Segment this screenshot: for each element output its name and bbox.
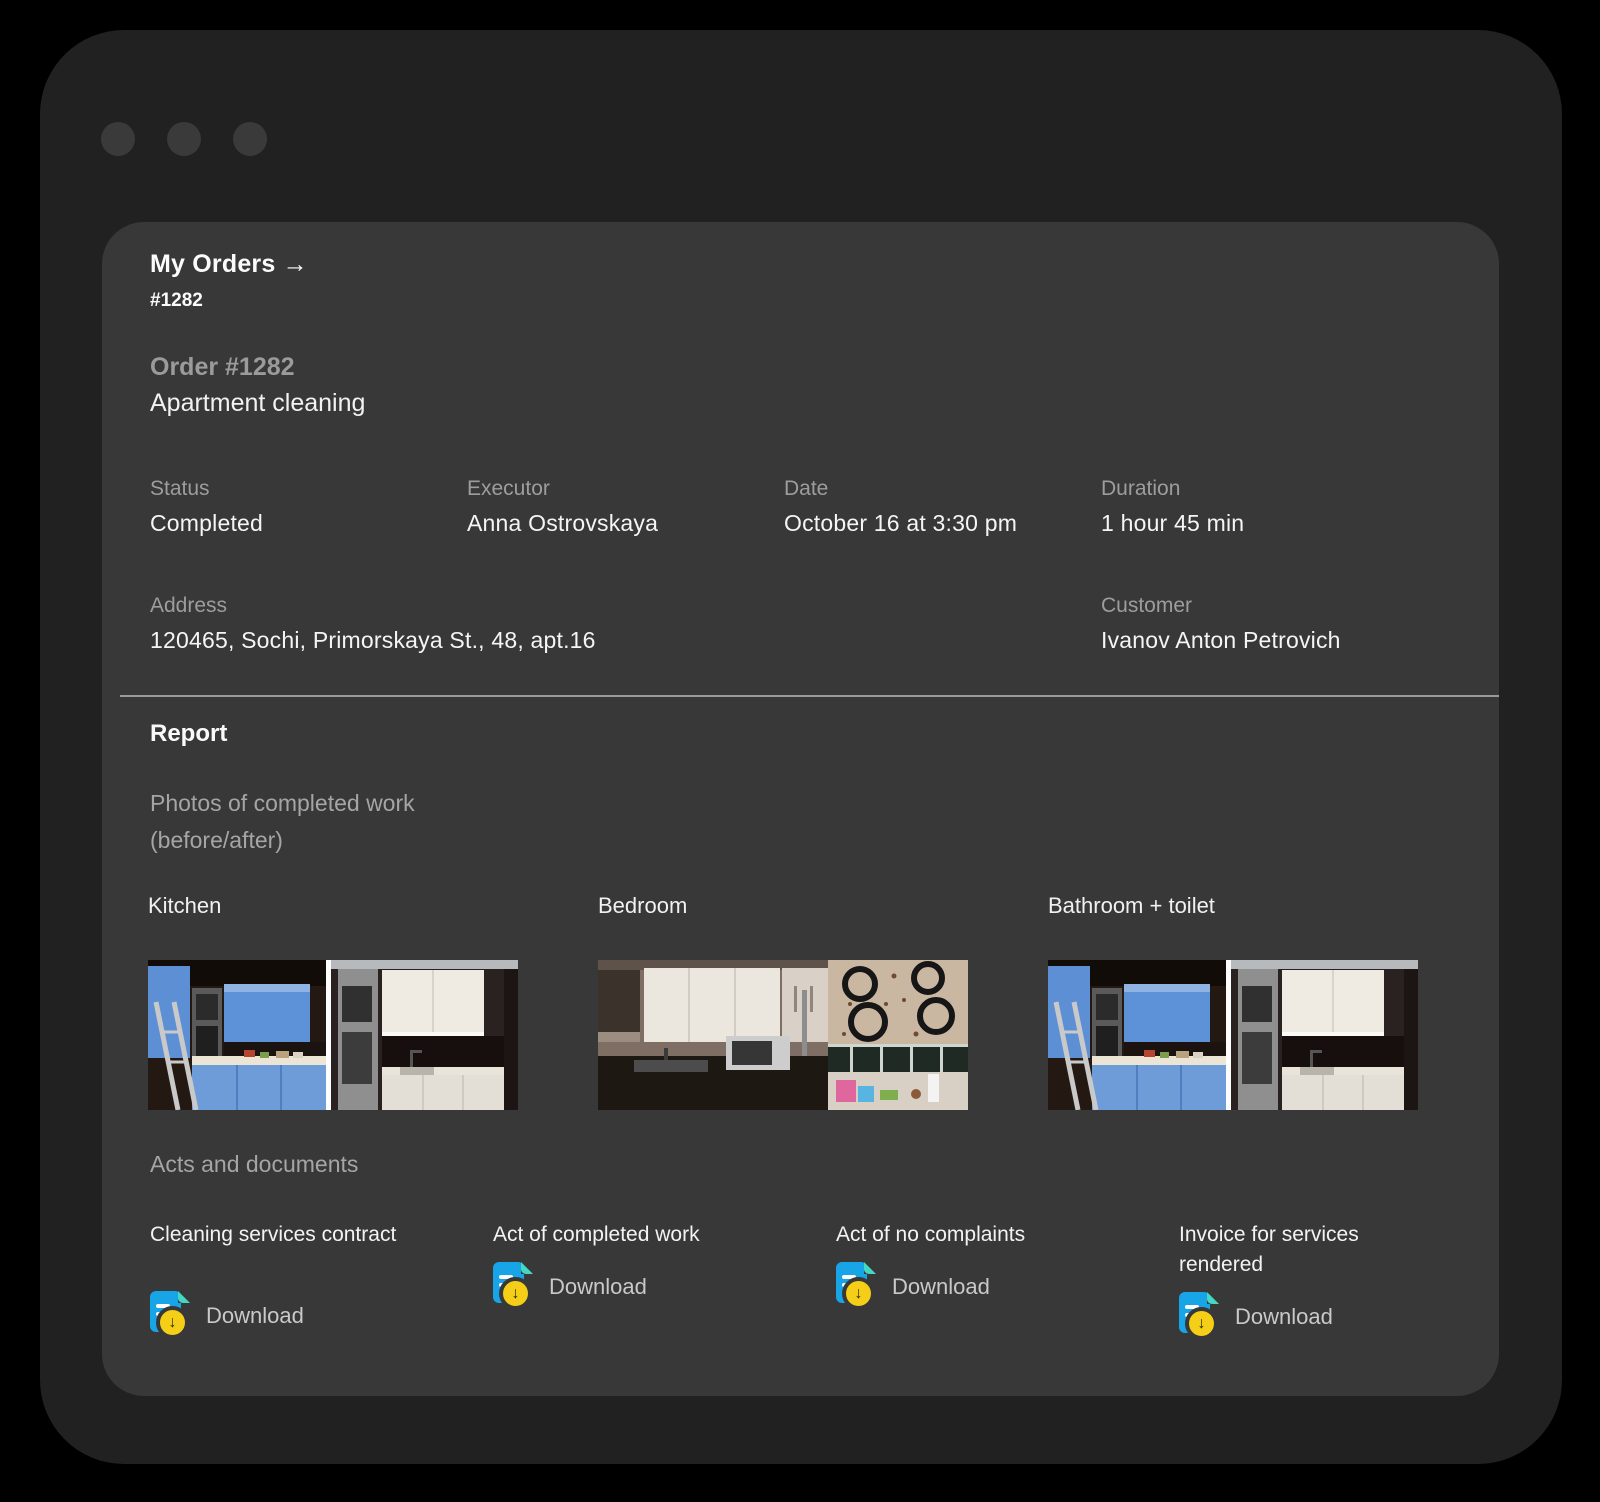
download-arrow-icon: ↓ bbox=[842, 1277, 875, 1310]
window-dot-icon[interactable] bbox=[167, 122, 201, 156]
room-label-kitchen: Kitchen bbox=[148, 893, 518, 919]
room-column-bedroom: Bedroom bbox=[598, 893, 968, 1110]
room-label-bathroom: Bathroom + toilet bbox=[1048, 893, 1418, 919]
breadcrumb-order-id: #1282 bbox=[150, 290, 203, 312]
download-label: Download bbox=[549, 1274, 647, 1300]
section-divider bbox=[120, 695, 1499, 697]
duration-label: Duration bbox=[1101, 476, 1244, 502]
room-label-bedroom: Bedroom bbox=[598, 893, 968, 919]
window-dot-icon[interactable] bbox=[233, 122, 267, 156]
photos-caption: Photos of completed work (before/after) bbox=[150, 785, 415, 859]
download-arrow-icon: ↓ bbox=[1185, 1307, 1218, 1340]
info-field-date: Date October 16 at 3:30 pm bbox=[784, 476, 1101, 538]
info-field-duration: Duration 1 hour 45 min bbox=[1101, 476, 1244, 538]
breadcrumb-my-orders[interactable]: My Orders → bbox=[150, 250, 308, 279]
executor-label: Executor bbox=[467, 476, 784, 502]
doc-item-act-no-complaints: Act of no complaints ↓ Download bbox=[836, 1220, 1179, 1342]
info-field-executor: Executor Anna Ostrovskaya bbox=[467, 476, 784, 538]
doc-item-invoice: Invoice for services rendered ↓ Download bbox=[1179, 1220, 1384, 1342]
download-label: Download bbox=[206, 1303, 304, 1329]
info-field-status: Status Completed bbox=[150, 476, 467, 538]
order-info-row: Address 120465, Sochi, Primorskaya St., … bbox=[150, 593, 1341, 655]
document-download-icon: ↓ bbox=[1179, 1292, 1219, 1342]
address-value: 120465, Sochi, Primorskaya St., 48, apt.… bbox=[150, 625, 1101, 655]
download-button[interactable]: ↓ Download bbox=[150, 1291, 304, 1341]
download-label: Download bbox=[1235, 1304, 1333, 1330]
window-dot-icon[interactable] bbox=[101, 122, 135, 156]
date-label: Date bbox=[784, 476, 1101, 502]
info-field-address: Address 120465, Sochi, Primorskaya St., … bbox=[150, 593, 1101, 655]
documents-row: Cleaning services contract ↓ Download Ac… bbox=[150, 1220, 1384, 1342]
bedroom-before-after-photo[interactable] bbox=[598, 960, 968, 1110]
duration-value: 1 hour 45 min bbox=[1101, 508, 1244, 538]
date-value: October 16 at 3:30 pm bbox=[784, 508, 1101, 538]
order-service-title: Apartment cleaning bbox=[150, 389, 365, 418]
documents-caption: Acts and documents bbox=[150, 1151, 358, 1178]
report-title: Report bbox=[150, 720, 227, 748]
download-button[interactable]: ↓ Download bbox=[1179, 1292, 1333, 1342]
download-button[interactable]: ↓ Download bbox=[493, 1262, 647, 1312]
document-download-icon: ↓ bbox=[836, 1262, 876, 1312]
doc-title: Act of completed work bbox=[493, 1220, 836, 1250]
doc-title: Act of no complaints bbox=[836, 1220, 1179, 1250]
window-controls bbox=[101, 122, 267, 156]
room-column-bathroom: Bathroom + toilet bbox=[1048, 893, 1418, 1110]
download-arrow-icon: ↓ bbox=[499, 1277, 532, 1310]
room-column-kitchen: Kitchen bbox=[148, 893, 518, 1110]
download-arrow-icon: ↓ bbox=[156, 1306, 189, 1339]
document-download-icon: ↓ bbox=[150, 1291, 190, 1341]
kitchen-before-after-photo[interactable] bbox=[148, 960, 518, 1110]
order-info-row: Status Completed Executor Anna Ostrovska… bbox=[150, 476, 1244, 538]
customer-label: Customer bbox=[1101, 593, 1341, 619]
doc-item-contract: Cleaning services contract ↓ Download bbox=[150, 1220, 493, 1342]
app-window: My Orders → #1282 Order #1282 Apartment … bbox=[40, 30, 1562, 1464]
doc-item-act-completed: Act of completed work ↓ Download bbox=[493, 1220, 836, 1342]
info-field-customer: Customer Ivanov Anton Petrovich bbox=[1101, 593, 1341, 655]
photos-caption-line2: (before/after) bbox=[150, 822, 415, 859]
doc-title: Cleaning services contract bbox=[150, 1220, 493, 1250]
photos-row: Kitchen bbox=[148, 893, 1418, 1110]
order-card: My Orders → #1282 Order #1282 Apartment … bbox=[102, 222, 1499, 1396]
doc-title: Invoice for services rendered bbox=[1179, 1220, 1384, 1280]
status-value: Completed bbox=[150, 508, 467, 538]
download-label: Download bbox=[892, 1274, 990, 1300]
document-download-icon: ↓ bbox=[493, 1262, 533, 1312]
photos-caption-line1: Photos of completed work bbox=[150, 785, 415, 822]
status-label: Status bbox=[150, 476, 467, 502]
address-label: Address bbox=[150, 593, 1101, 619]
download-button[interactable]: ↓ Download bbox=[836, 1262, 990, 1312]
order-number: Order #1282 bbox=[150, 353, 295, 382]
customer-value: Ivanov Anton Petrovich bbox=[1101, 625, 1341, 655]
bathroom-before-after-photo[interactable] bbox=[1048, 960, 1418, 1110]
executor-value: Anna Ostrovskaya bbox=[467, 508, 784, 538]
